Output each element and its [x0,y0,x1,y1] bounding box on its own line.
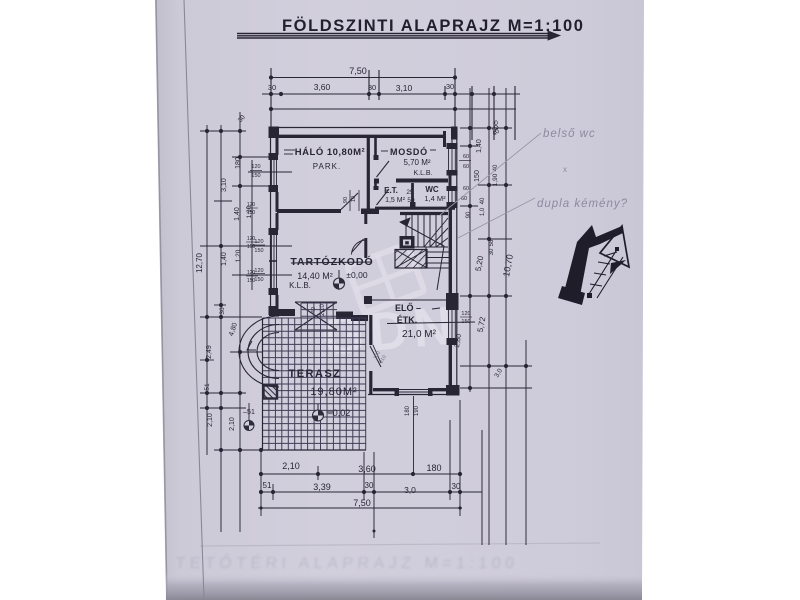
svg-text:E.T.: E.T. [384,186,398,195]
svg-text:FÖLDSZINTI ALAPRAJZ M=1:100: FÖLDSZINTI ALAPRAJZ M=1:100 [282,16,585,35]
svg-text:30: 30 [268,83,276,92]
svg-text:30: 30 [489,248,495,255]
svg-text:30: 30 [365,481,374,490]
svg-text:51: 51 [204,383,211,391]
svg-text:MOSDÓ: MOSDÓ [390,146,428,157]
svg-text:3,10: 3,10 [221,178,228,192]
svg-text:WC: WC [425,185,439,194]
svg-text:HÁLÓ 10,80M²: HÁLÓ 10,80M² [295,146,365,158]
svg-text:14,40 M²: 14,40 M² [297,271,333,281]
svg-text:150: 150 [247,278,256,284]
svg-text:120: 120 [247,270,256,276]
svg-text:2,10: 2,10 [207,413,214,427]
svg-text:3,10: 3,10 [396,83,413,93]
svg-text:60: 60 [463,186,469,192]
svg-text:90: 90 [343,197,349,203]
svg-text:7,50: 7,50 [349,66,367,76]
svg-text:51: 51 [263,481,272,490]
svg-text:50: 50 [407,197,415,204]
svg-text:3,60: 3,60 [358,464,376,474]
svg-text:150: 150 [247,244,256,250]
svg-text:60: 60 [463,154,469,160]
svg-text:3,39: 3,39 [313,482,331,492]
svg-text:1,4 M²: 1,4 M² [424,194,446,203]
svg-text:–0,02: –0,02 [328,408,351,418]
svg-text:1,0: 1,0 [480,207,486,216]
svg-text:120: 120 [247,236,256,242]
svg-text:12,70: 12,70 [195,252,204,273]
svg-text:dupla kémény?: dupla kémény? [537,198,628,210]
svg-text:180: 180 [426,463,441,473]
svg-text:7,50: 7,50 [353,498,371,508]
svg-text:x: x [563,165,567,174]
svg-text:ELŐ –: ELŐ – [395,302,421,313]
svg-text:60: 60 [463,164,469,170]
svg-text:2,10: 2,10 [282,461,300,471]
svg-text:150: 150 [254,277,263,283]
svg-text:5,70 M²: 5,70 M² [403,158,430,167]
svg-text:±0,00: ±0,00 [346,270,367,280]
svg-text:TARTÓZKODÓ: TARTÓZKODÓ [290,255,373,268]
svg-text:150: 150 [251,173,260,179]
svg-text:58: 58 [489,239,495,246]
svg-text:1,40: 1,40 [221,252,228,266]
svg-text:30: 30 [446,82,454,91]
svg-text:25: 25 [406,189,414,196]
svg-text:120: 120 [254,268,263,274]
svg-text:40: 40 [480,197,486,204]
svg-text:TETŐTÉRI ALAPRAJZ M=1:100: TETŐTÉRI ALAPRAJZ M=1:100 [175,553,519,572]
svg-text:190: 190 [414,405,420,416]
svg-text:10: 10 [351,196,357,202]
svg-text:3,0: 3,0 [404,485,416,495]
svg-text:PARK.: PARK. [313,162,341,171]
svg-text:1,90: 1,90 [492,173,499,186]
svg-text:150: 150 [474,170,481,182]
svg-text:2,49: 2,49 [206,345,213,359]
svg-text:K.L.B.: K.L.B. [289,281,311,290]
svg-text:21,0 M²: 21,0 M² [402,329,437,340]
svg-text:30: 30 [219,307,226,315]
svg-text:120: 120 [251,164,260,170]
svg-text:3,60: 3,60 [314,82,331,92]
svg-text:180: 180 [235,157,242,169]
svg-text:120: 120 [461,311,470,317]
svg-text:90: 90 [466,211,472,218]
svg-text:TERASZ: TERASZ [289,368,342,380]
svg-text:K.L.B.: K.L.B. [413,170,432,177]
svg-text:120: 120 [247,202,256,208]
svg-text:150: 150 [247,210,256,216]
svg-text:1,5 M²: 1,5 M² [385,197,406,204]
svg-text:2,10: 2,10 [229,417,236,431]
svg-text:1,20: 1,20 [235,249,242,262]
svg-text:150: 150 [461,319,470,325]
svg-text:belső wc: belső wc [543,128,596,140]
svg-text:1,40: 1,40 [234,207,241,221]
svg-text:19,80M²: 19,80M² [310,386,357,398]
svg-text:180: 180 [405,405,411,416]
svg-text:150: 150 [254,248,263,254]
svg-text:1,40: 1,40 [476,139,483,153]
